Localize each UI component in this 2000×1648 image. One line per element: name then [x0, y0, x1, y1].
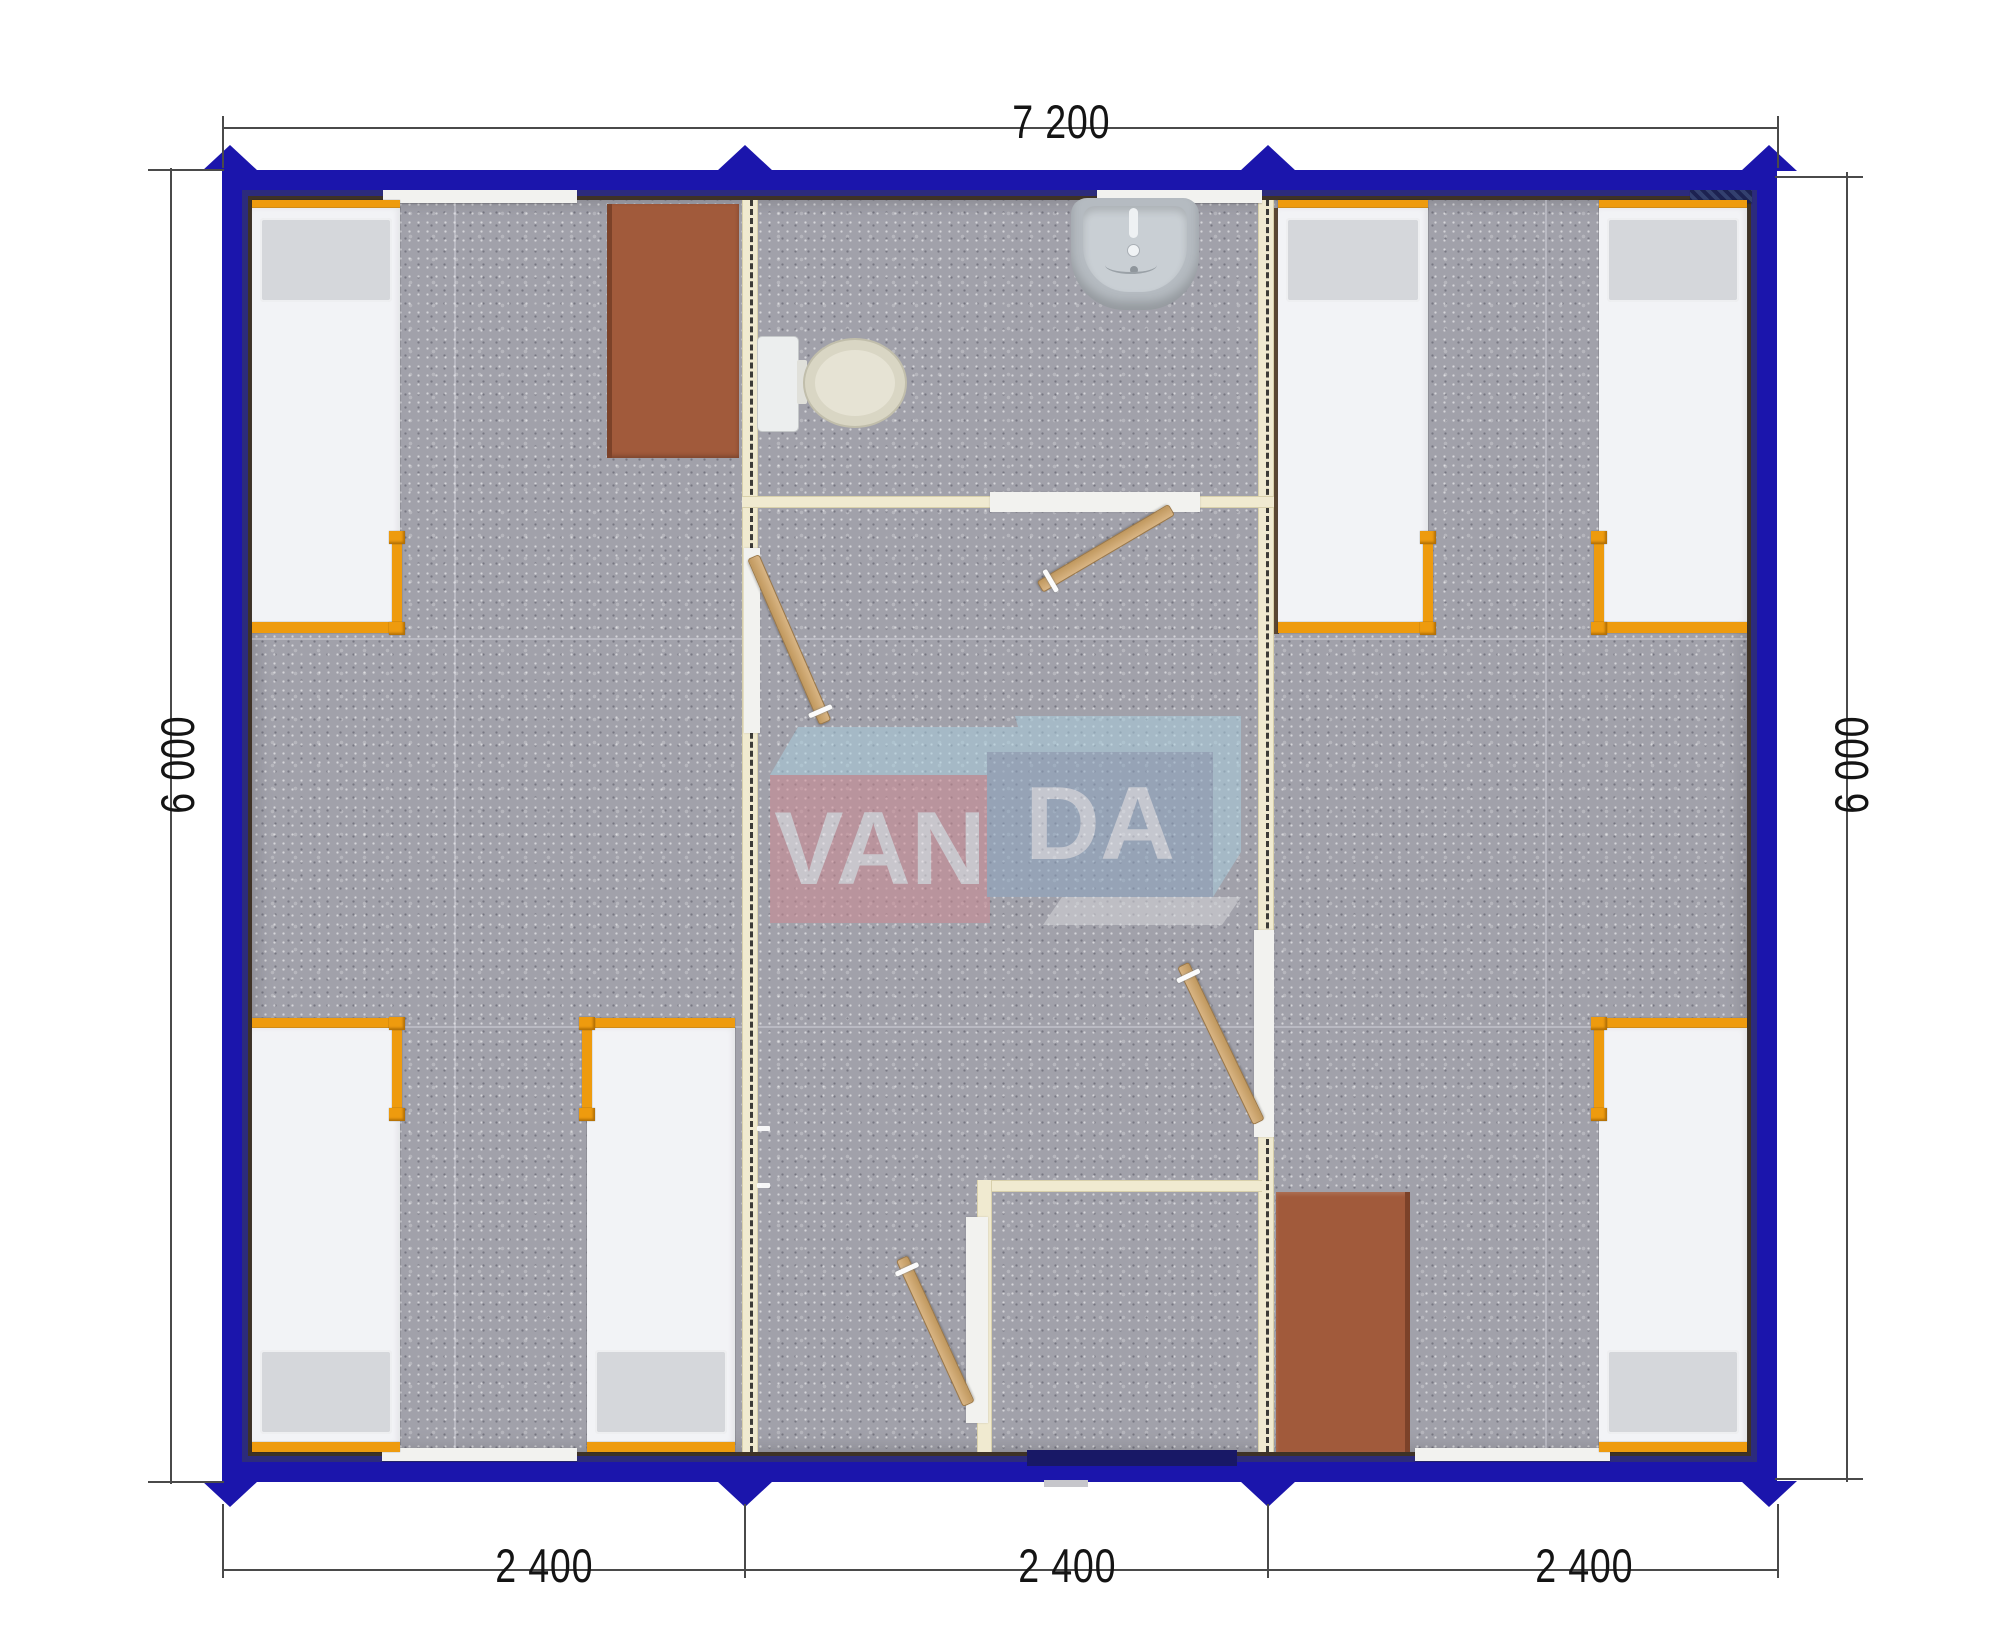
extension-line — [1267, 1504, 1269, 1578]
entrance-door — [1027, 1450, 1237, 1466]
table-bottom-right — [1276, 1192, 1410, 1452]
toilet — [757, 330, 917, 440]
sink-curve — [1105, 256, 1157, 274]
logo-bottom-face — [1043, 897, 1241, 925]
vestibule-wall-top — [977, 1180, 1262, 1192]
panel-mark — [757, 1183, 770, 1188]
bed-frame-post — [392, 1024, 402, 1114]
extension-line — [1777, 116, 1779, 168]
pillow — [260, 218, 392, 302]
dimension-line-right — [1846, 172, 1848, 1482]
extension-line — [222, 1504, 224, 1578]
sink — [1071, 198, 1199, 314]
logo-text-da: DA — [987, 752, 1213, 897]
pillow — [595, 1350, 727, 1434]
joint-arrow-top — [1741, 145, 1797, 171]
vanda-logo-watermark: VAN DA — [762, 716, 1296, 928]
carpet-seam — [1545, 200, 1547, 1452]
extension-line — [1777, 1504, 1779, 1578]
joint-arrow-top — [202, 145, 258, 171]
carpet-seam — [454, 200, 456, 1452]
extension-line — [222, 116, 224, 168]
window — [382, 1448, 577, 1461]
pillow — [1286, 218, 1420, 302]
pillow — [1607, 1350, 1739, 1434]
bed-head-frame — [587, 1442, 735, 1452]
bed-foot-frame — [252, 622, 400, 633]
bed-frame-post — [1594, 1024, 1604, 1114]
extension-line — [148, 1481, 224, 1483]
extension-line — [744, 1504, 746, 1578]
extension-line — [148, 169, 224, 171]
toilet-seat — [815, 350, 895, 416]
joint-arrow-bottom — [202, 1481, 258, 1507]
logo-text-van: VAN — [770, 775, 990, 923]
toilet-tank — [757, 336, 799, 432]
bed-foot-frame — [1599, 622, 1747, 633]
dimension-line-left — [170, 168, 172, 1484]
window — [383, 190, 577, 203]
faucet-icon — [1129, 208, 1138, 238]
entrance-step — [1044, 1480, 1088, 1487]
window — [1415, 1448, 1610, 1461]
pillow — [260, 1350, 392, 1434]
joint-arrow-top — [1240, 145, 1296, 171]
carpet-seam — [252, 638, 1747, 640]
module-joint-wall-right — [1258, 200, 1274, 1452]
module-joint-wall-left — [742, 200, 758, 1452]
bed-frame-post — [582, 1024, 592, 1114]
dimension-line-top — [222, 127, 1779, 129]
joint-arrow-bottom — [1741, 1481, 1797, 1507]
bed-foot-frame — [1278, 622, 1428, 633]
carpet-seam — [252, 1026, 1747, 1028]
panel-mark — [757, 1126, 770, 1131]
extension-line — [1775, 176, 1863, 178]
floor-plan: VAN DA — [0, 0, 2000, 1648]
bed-frame-post — [1594, 538, 1604, 628]
pillow — [1607, 218, 1739, 302]
bed-head-frame — [252, 1442, 400, 1452]
bed-frame-post — [392, 538, 402, 628]
joint-arrow-top — [717, 145, 773, 171]
bed-head-frame — [1599, 1442, 1747, 1452]
table-top-left — [607, 204, 739, 458]
bed-frame-post — [1423, 538, 1433, 628]
extension-line — [1775, 1478, 1863, 1480]
